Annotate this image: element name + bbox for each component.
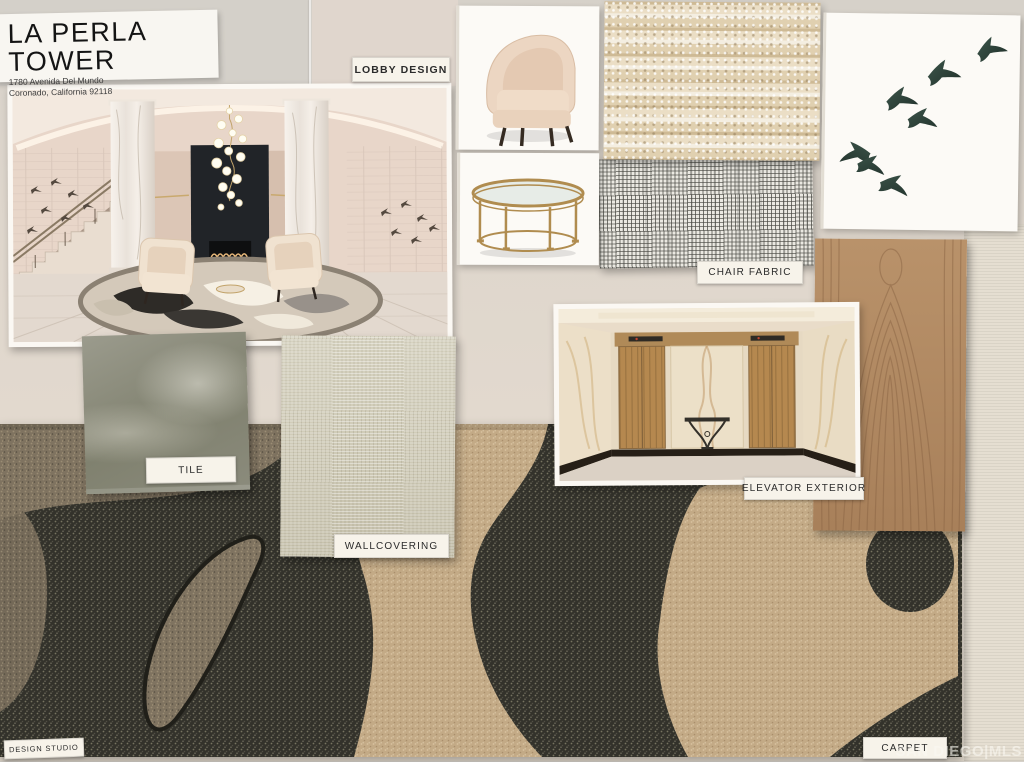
project-title: LA PERLA TOWER <box>7 16 218 77</box>
armchair-photo <box>456 6 600 151</box>
design-studio-label: DESIGN STUDIO <box>4 738 84 760</box>
grid-weave-fabric-swatch <box>598 157 814 269</box>
birds-artwork <box>821 13 1021 232</box>
tile-label: TILE <box>146 456 236 484</box>
elevator-rendering <box>553 302 860 486</box>
title-card: LA PERLA TOWER 1780 Avenida Del Mundo Co… <box>0 10 219 83</box>
wallcovering-label: WALLCOVERING <box>334 534 449 558</box>
elevator-exterior-label: ELEVATOR EXTERIOR <box>744 477 864 500</box>
coffee-table-photo <box>457 153 599 265</box>
boucle-armchair <box>486 35 575 146</box>
wallcovering-sample <box>280 335 456 557</box>
lobby-rendering <box>7 83 452 347</box>
lobby-design-label: LOBBY DESIGN <box>352 57 450 82</box>
fireplace-wall <box>191 145 270 271</box>
gold-side-table <box>216 285 244 293</box>
area-rug <box>80 258 380 342</box>
boucle-fabric-swatch <box>603 1 820 161</box>
brass-coffee-table <box>473 180 583 251</box>
mls-watermark: SAN DIEGO|MLS <box>895 743 1022 760</box>
mood-board-photo: { "board": { "title_card": { "title": "L… <box>0 0 1024 761</box>
bookmatched-marble-panel <box>671 346 744 449</box>
paper-seam <box>309 0 311 86</box>
chair-fabric-label: CHAIR FABRIC <box>697 261 803 284</box>
flying-birds <box>836 31 1009 201</box>
ribbed-edge-mat <box>964 224 1024 761</box>
